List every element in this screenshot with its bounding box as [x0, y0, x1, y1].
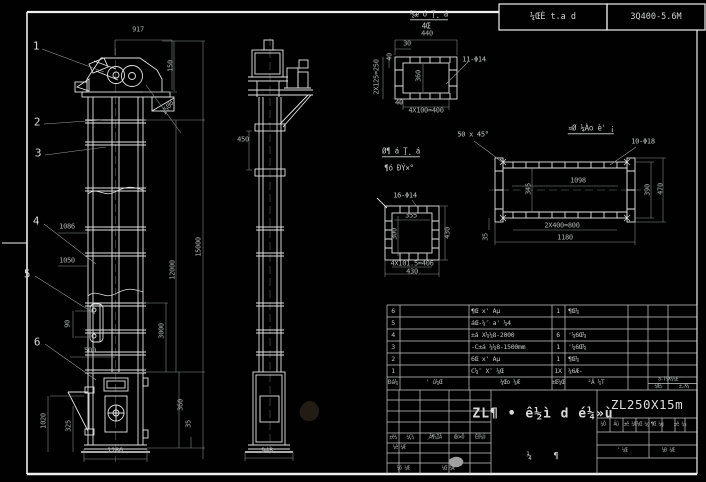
balloon-5: 5 [24, 269, 30, 280]
right-col-5: ¶Œ ¼g [651, 423, 664, 428]
bom-row-qty: 6 [556, 332, 560, 339]
vtitle-label: ¤Ø ¼Ào è' ¡ [568, 124, 614, 134]
bom-header-name: ¼Œo ¼Æ [500, 380, 520, 386]
right-col-6: ±ê ¼¼ [674, 423, 687, 428]
vtitle-label: ½æ ó Ţ¸ á [410, 10, 448, 20]
bom-header-mat: ²Ä ¼T [588, 380, 605, 386]
balloon-2: 2 [34, 117, 40, 128]
note-label: 11-Φ14 [462, 57, 486, 64]
bom-row-no: 6 [391, 308, 395, 315]
vtitle-label: 4Œ [422, 22, 430, 30]
flange-detail-view [395, 57, 457, 99]
bom-row-name: -C±á ¼¼8-1500mm [471, 344, 525, 351]
bom-row-no: 2 [391, 356, 395, 363]
rev-col-1: ±ê¼ [389, 436, 397, 441]
dim-label: 1098 [570, 178, 586, 185]
bom-row-name: C¼″ X″ ¼Œ [471, 368, 504, 375]
rev-col-5: ÈÕ¼Ú [475, 436, 485, 441]
dim-label: 1050 [59, 258, 75, 265]
dim-label: 450 [237, 137, 249, 144]
dim-label: 2X125=250 [374, 59, 381, 94]
sheet-mark-1: ¼ [526, 453, 531, 462]
bom-row-name: 6Œ x' Aµ [471, 356, 500, 363]
right-col-4: ¼Œ ¼g [637, 423, 650, 428]
bom-row-material: ¼6Æ- [568, 368, 582, 375]
dim-label: 440 [421, 31, 433, 38]
dim-label: 1180 [557, 235, 573, 242]
bom-row-name: áŒ-¼″ a' ¼4 [471, 320, 511, 327]
bom-header-qty: ±Œ¼Œ [551, 380, 564, 386]
bom-header-seq: Ðá¼ [388, 380, 398, 386]
dim-label: 360 [178, 399, 185, 411]
square-flange-detail [377, 198, 439, 260]
dim-label: 345 [526, 183, 533, 195]
bom-row-material: ¶Œ¼ [568, 308, 579, 315]
dim-label: 40 [387, 53, 394, 61]
note-label: 10-Φ18 [631, 139, 655, 146]
note-label: 16-Φ14 [393, 193, 417, 200]
drawing-number: 3Q400-5.6M [630, 13, 681, 22]
dim-label: 430 [445, 227, 452, 239]
right-row-2: ¼Ð ¼Œ [662, 449, 675, 454]
balloon-6: 6 [34, 337, 40, 348]
model-number: ZL250X15m [611, 399, 683, 412]
dim-label: 300 [392, 228, 399, 240]
dim-label: 1020 [41, 413, 48, 429]
rev-col-2: ¼Ç¼ [406, 436, 414, 441]
bom-header-remark: ±,X¼ [679, 385, 689, 390]
dim-label: 4X101.5=406 [390, 261, 433, 268]
right-col-3: ±ê ¼Œ [624, 423, 637, 428]
dim-label: 1286 [107, 448, 123, 455]
bom-row-qty: 1 [556, 308, 560, 315]
right-col-1: ¼Ö [600, 423, 605, 428]
right-col-2: Ãü [613, 423, 618, 428]
balloon-4: 4 [33, 216, 39, 227]
vtitle-label: Ø¶ á Ţ¸ á [382, 147, 420, 157]
bom-row-qty: 1 [556, 344, 560, 351]
bom-row-no: 1 [391, 368, 395, 375]
vtitle-label: ¶ó ÐÝ×° [384, 164, 414, 172]
dim-label: 15000 [196, 237, 203, 257]
balloon-3: 3 [35, 148, 41, 159]
note-label: 50 x 45° [457, 132, 488, 139]
dim-label: 90 [65, 320, 72, 328]
bom-row-no: 4 [391, 332, 395, 339]
bom-header-code: ' ú¼Œ [426, 380, 443, 386]
dim-label: 4X100=400 [408, 108, 443, 115]
stamp-center-cell: ¼ŒÈ t.a d [530, 13, 576, 22]
cad-drawing-canvas: 9171501500108610509050010203251286150001… [0, 0, 706, 482]
dim-label: 2X400=800 [544, 223, 579, 230]
dim-label: 150 [168, 60, 175, 72]
dim-label: 325 [66, 420, 73, 432]
dim-label: 30 [403, 41, 411, 48]
bom-row-qty: 1 [556, 356, 560, 363]
dim-label: 390 [645, 184, 652, 196]
bom-row-no: 3 [391, 344, 395, 351]
dim-label: 430 [406, 269, 418, 276]
dim-label: 360 [416, 70, 423, 82]
dim-label: 35 [186, 420, 193, 428]
extra-label: ¼ô ¼Œ [397, 467, 410, 472]
bom-row-qty: 1X [554, 368, 561, 375]
balloon-1: 1 [33, 41, 39, 52]
dim-label: 500 [84, 348, 96, 355]
dim-label: 12000 [170, 260, 177, 280]
bom-row-name: ¶Œ x' Aµ [471, 308, 500, 315]
bom-header-weight-sub: ¼Œ¼ [654, 385, 662, 390]
bom-row-material: '¼6Œ¼ [568, 332, 586, 339]
dim-label: 40 [395, 100, 403, 107]
side-view [245, 40, 313, 452]
bom-row-material: ¶Œ¼ [568, 356, 579, 363]
dim-label: 917 [132, 27, 144, 34]
rev-col-3: ¸Ä¶¼ÎÄ [426, 436, 441, 441]
drawing-title: ZL¶ • ê½ì d é¼»ù [472, 408, 613, 421]
bom-row-no: 5 [391, 320, 395, 327]
sheet-mark-2: ¶ [553, 453, 558, 462]
dim-label: 3000 [159, 323, 166, 339]
bom-row-material: '¼6Œ¼ [568, 344, 586, 351]
design-label: ¼è ¼Æ [393, 446, 406, 451]
rev-col-4: Œ©×Ö [454, 436, 464, 441]
craft-label: ¼Œ ¼Æ [442, 467, 455, 472]
bom-row-name: ±á X¼¼8-2000 [471, 332, 514, 339]
dim-label: 35 [483, 233, 490, 241]
dimension-lines [48, 40, 666, 462]
dim-label: 948 [261, 448, 273, 455]
bom-header-weight: a-T¼X¼¼E [658, 378, 678, 383]
dim-label: 1086 [59, 224, 75, 231]
right-row-1: ' ¼Œ [617, 449, 627, 454]
dim-label: 470 [658, 183, 665, 195]
bom-grid [387, 305, 697, 390]
dim-label: 355 [405, 213, 417, 220]
